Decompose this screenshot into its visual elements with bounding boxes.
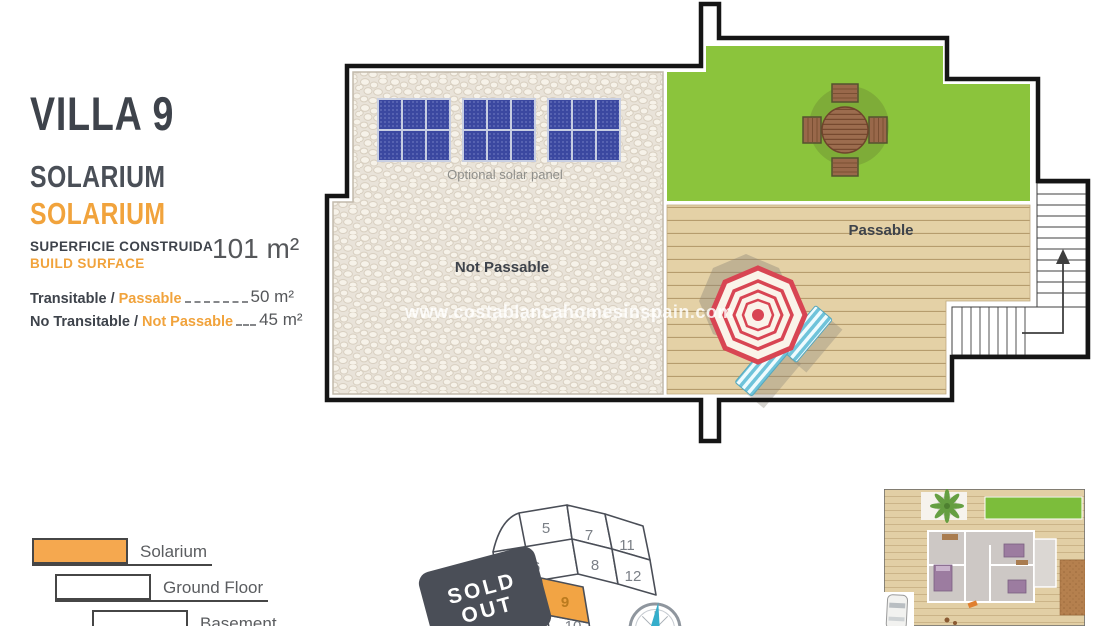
plot-number: 7 (585, 527, 593, 544)
plot-number: 8 (591, 557, 599, 574)
build-surface-value: 101 m² (212, 233, 299, 265)
floor-label-accent: SOLARIUM (30, 198, 165, 229)
car (886, 594, 908, 626)
plot-number: 12 (625, 568, 642, 585)
floor-plan-page: 5 7 11 6 8 12 10 9 SOLD OUT (0, 0, 1110, 626)
legend-item-basement: Basement (92, 610, 288, 626)
overview-mini-plan (884, 489, 1085, 626)
legend-label: Basement (200, 614, 277, 626)
area-label-accent: Not Passable (142, 314, 233, 330)
legend-swatch-basement (92, 610, 188, 626)
area-value: 45 m² (259, 310, 302, 330)
passable-label: Passable (781, 222, 981, 239)
current-plot-number: 9 (561, 594, 569, 611)
area-value: 50 m² (251, 287, 294, 307)
build-surface-label-en: BUILD SURFACE (30, 256, 145, 271)
floor-label: SOLARIUM (30, 161, 165, 192)
plot-map: 5 7 11 6 8 12 10 9 SOLD OUT (416, 505, 656, 626)
legend-item-solarium: Solarium (32, 538, 212, 566)
legend-swatch-solarium (32, 538, 128, 564)
compass-icon (630, 602, 680, 626)
area-row-passable: Transitable / Passable 50 m² (30, 284, 294, 307)
sold-out-banner: SOLD OUT (416, 544, 554, 626)
palm-tree (930, 489, 964, 523)
solar-panel (377, 98, 451, 162)
area-label: Transitable / (30, 291, 115, 307)
plot-number: 11 (619, 537, 635, 554)
area-label: No Transitable / (30, 314, 138, 330)
watermark: www.costablancahomesinspain.com (405, 302, 705, 323)
mini-lawn (985, 497, 1082, 519)
area-label-accent: Passable (119, 291, 182, 307)
solar-panel (462, 98, 536, 162)
area-row-not-passable: No Transitable / Not Passable 45 m² (30, 307, 294, 330)
plot-number: 5 (542, 520, 550, 537)
not-passable-label: Not Passable (402, 259, 602, 276)
dotted-leader (185, 301, 248, 303)
legend-label: Ground Floor (163, 578, 263, 600)
legend-swatch-ground-floor (55, 574, 151, 600)
area-breakdown: Transitable / Passable 50 m² No Transita… (30, 284, 294, 330)
build-surface-label-es: SUPERFICIE CONSTRUIDA (30, 239, 213, 254)
solar-panel (547, 98, 621, 162)
solar-panels (377, 98, 621, 162)
legend-item-ground-floor: Ground Floor (55, 574, 268, 602)
page-title: VILLA 9 (30, 90, 174, 137)
dotted-leader (236, 324, 256, 326)
plot-number: 10 (565, 618, 582, 626)
solar-panel-caption: Optional solar panel (403, 167, 607, 182)
legend-label: Solarium (140, 542, 207, 564)
